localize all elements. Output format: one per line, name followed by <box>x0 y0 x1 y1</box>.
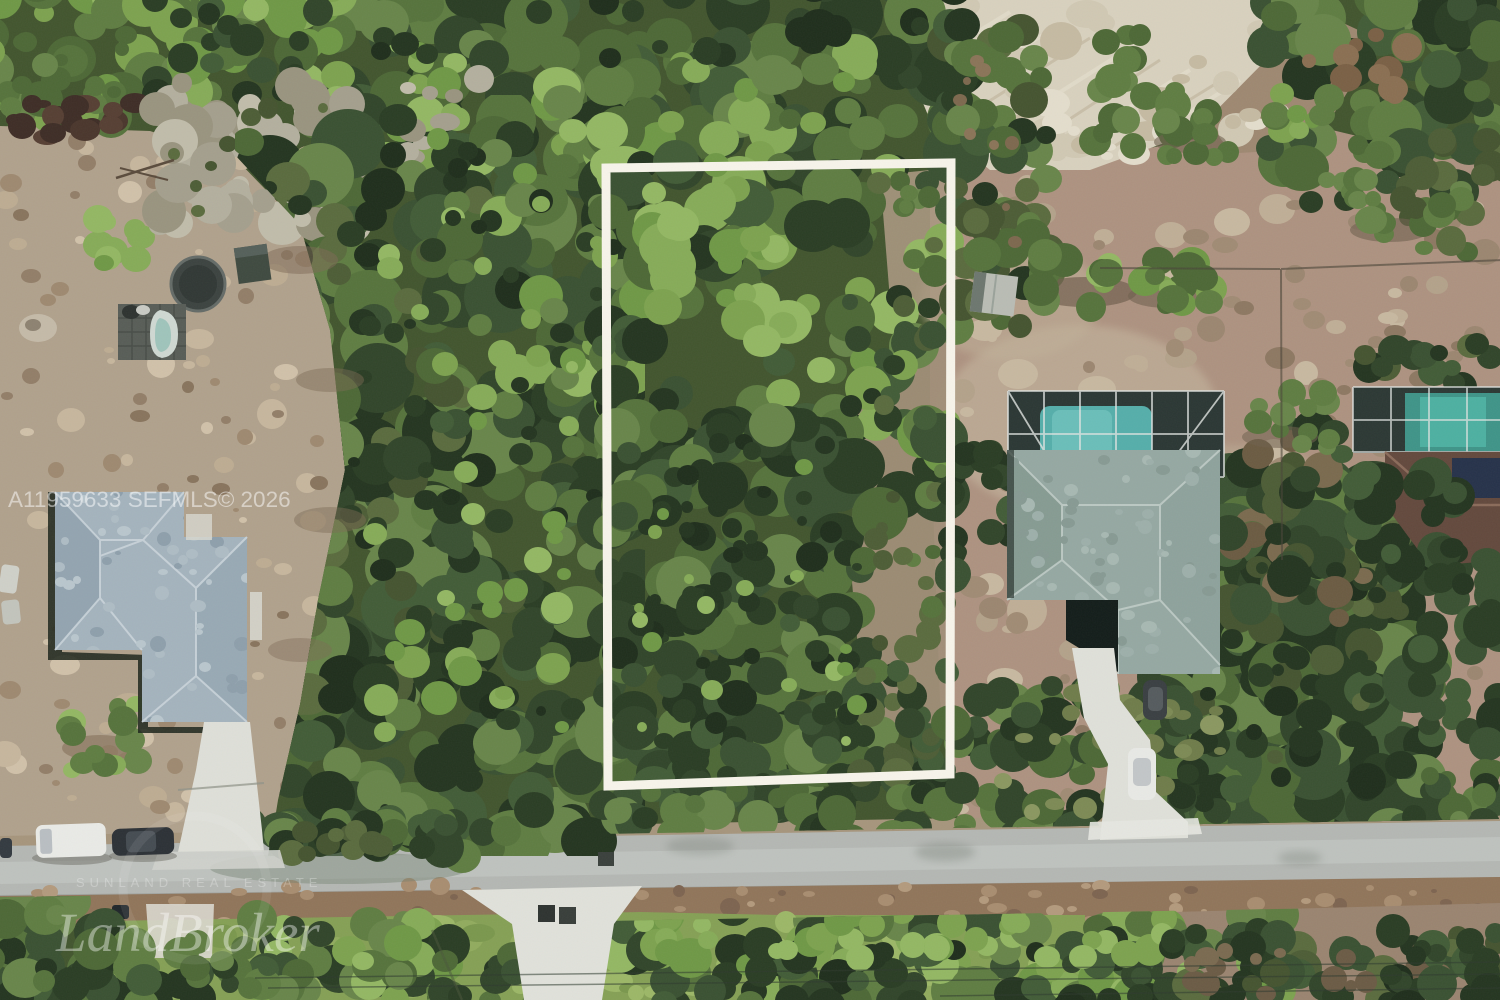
svg-text:LandBroker: LandBroker <box>55 902 320 963</box>
svg-text:A11959633 SEFMLS© 2026: A11959633 SEFMLS© 2026 <box>8 487 291 512</box>
svg-text:SUNLAND REAL ESTATE: SUNLAND REAL ESTATE <box>76 875 322 890</box>
